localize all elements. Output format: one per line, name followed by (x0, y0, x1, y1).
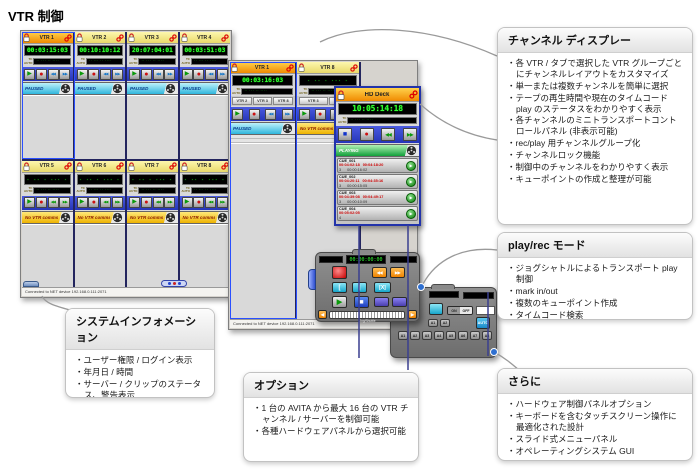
tc-row: TCAUTO (336, 115, 419, 125)
tc-row: TCAUTO (22, 56, 73, 66)
timecode-display: 00:03:15:03 (24, 45, 71, 56)
stop-button[interactable]: ■ (338, 128, 352, 141)
callout-bullet: タイムコード検索 (506, 310, 684, 321)
play-button[interactable]: ▶ (232, 109, 243, 120)
link-icon[interactable] (116, 34, 124, 42)
channel-body[interactable] (22, 95, 73, 159)
tc-mini-display (191, 187, 228, 194)
audio-channel-button[interactable]: A4 (434, 331, 444, 340)
vtr-channel[interactable]: VTR 7 TCAUTO ▶ ● ◀◀ ▶▶ (127, 161, 180, 288)
callout-bullet: ユーザー権限 / ログイン表示 (74, 355, 206, 366)
callout-bullet: キューポイントの作成と整理が可能 (506, 174, 684, 185)
mini-transport: ▶ ● ◀◀ ▶▶ (22, 67, 73, 81)
rewind-button[interactable]: ◀◀ (372, 267, 387, 278)
panel-notch[interactable] (431, 284, 455, 289)
channel-row-1: VTR 1 00:03:15:03 TCAUTO ▶ ● ◀◀ ▶▶ (22, 32, 230, 161)
channel-body[interactable] (127, 95, 178, 159)
vtr-channel[interactable]: VTR 8 TCAUTO ▶ ● ◀◀ ▶▶ (180, 161, 231, 288)
record-button[interactable] (332, 266, 347, 279)
channel-body[interactable] (180, 224, 231, 288)
callout-bullet: 複数のキューポイント作成 (506, 298, 684, 309)
callout-items: ジョグシャトルによるトランスポート play 制御mark in/out複数のキ… (498, 258, 692, 320)
channel-title: VTR 4 (188, 35, 222, 41)
mini-transport: ▶ ● ◀◀ ▶▶ (127, 196, 178, 210)
vtr-tab[interactable]: VTR 2 (232, 97, 252, 105)
tc-mini-display (241, 88, 293, 95)
aux-timecode-display (390, 256, 417, 263)
callout-bullet: 制御中のチャンネルをわかりやすく表示 (506, 162, 684, 173)
tc-auto-label: TCAUTO (182, 187, 190, 194)
play-button[interactable]: ▶ (77, 197, 88, 208)
mini-transport: ▶ ● ◀◀ ▶▶ (127, 67, 178, 81)
callout-bullet: 各種ハードウェアパネルから選択可能 (252, 426, 410, 437)
link-icon[interactable] (116, 162, 124, 170)
tc-row: TCAUTO (127, 56, 178, 66)
callout-channel-display: チャンネル ディスプレー 各 VTR / タブで選択した VTR グループごとに… (497, 27, 693, 225)
cue-item[interactable]: CUE_001 00:04:02:1800:04:18:20 300:00:16… (337, 158, 418, 173)
callout-items: ユーザー権限 / ログイン表示年月日 / 時間サーバー / クリップのステータス… (66, 350, 214, 398)
channel-title: VTR 7 (135, 163, 169, 169)
fast-forward-button[interactable]: ▶▶ (164, 197, 175, 208)
channel-header[interactable]: VTR 7 (127, 161, 178, 173)
mini-transport: ▶ ● ◀◀ ▶▶ (75, 196, 126, 210)
link-icon[interactable] (169, 34, 177, 42)
record-button[interactable]: ● (141, 197, 152, 208)
cue-duration: 00:00:15:05 (347, 184, 367, 188)
lock-icon[interactable] (181, 162, 188, 171)
tc-auto-label: TCAUTO (299, 88, 307, 95)
channel-title: HD Deck (345, 92, 409, 98)
mode-button[interactable] (392, 297, 407, 307)
record-button[interactable]: ● (88, 197, 99, 208)
tc-mini-display (33, 187, 70, 194)
jog-left-button[interactable]: ◀ (318, 310, 327, 319)
mini-transport: ▶ ● ◀◀ ▶▶ (230, 107, 295, 121)
tc-row: TCAUTO (22, 185, 73, 195)
channel-row-2: VTR 5 TCAUTO ▶ ● ◀◀ ▶▶ (22, 161, 230, 288)
channel-pager[interactable] (161, 280, 187, 287)
timecode-display (299, 75, 357, 86)
vtr-channel[interactable]: VTR 3 20:07:04:01 TCAUTO ▶ ● ◀◀ ▶▶ (127, 32, 180, 159)
record-button[interactable]: ● (193, 197, 204, 208)
film-reel-icon (110, 83, 125, 94)
rewind-button[interactable]: ◀◀ (153, 197, 164, 208)
cue-duration: 00:00:10:09 (347, 200, 367, 204)
fast-forward-button[interactable]: ▶▶ (59, 197, 70, 208)
play-button[interactable]: ▶ (77, 69, 88, 80)
record-button[interactable]: ● (249, 109, 260, 120)
channel-header[interactable]: VTR 5 (22, 161, 73, 173)
callout-items: 各 VTR / タブで選択した VTR グループごとにチャンネルレイアウトをカス… (498, 53, 692, 190)
callout-bullet: 各 VTR / タブで選択した VTR グループごとにチャンネルレイアウトをカス… (506, 58, 684, 80)
fast-forward-button[interactable]: ▶▶ (217, 197, 228, 208)
link-icon[interactable] (221, 34, 229, 42)
cue-play-button[interactable]: ▶ (406, 161, 416, 171)
mini-transport: ▶ ● ◀◀ ▶▶ (180, 67, 231, 81)
vtr-channel[interactable]: VTR 2 00:10:10:12 TCAUTO ▶ ● ◀◀ ▶▶ (75, 32, 128, 159)
channel-title: VTR 1 (238, 65, 286, 71)
tc-auto-label: TCAUTO (129, 187, 137, 194)
tc-auto-label: TCAUTO (24, 58, 32, 65)
tc-mini-display (33, 58, 70, 65)
channel-status-bar: PAUSED (75, 82, 126, 95)
channel-header[interactable]: VTR 3 (127, 32, 178, 44)
mark-button[interactable] (429, 303, 443, 315)
tc-auto-label: TCAUTO (338, 117, 346, 124)
channel-title: VTR 8 (188, 163, 222, 169)
toggle-off[interactable]: OFF (460, 307, 472, 314)
vtr-channel[interactable]: VTR 5 TCAUTO ▶ ● ◀◀ ▶▶ (22, 161, 75, 288)
cue-out: 00:04:49:17 (363, 195, 384, 199)
channel-body[interactable] (75, 224, 126, 288)
link-icon[interactable] (286, 64, 294, 72)
callout-title: オプション (244, 373, 418, 398)
rewind-button[interactable]: ◀◀ (153, 69, 164, 80)
fast-forward-button[interactable]: ▶▶ (112, 197, 123, 208)
film-reel-icon (110, 212, 125, 223)
cue-number: 4 (339, 216, 341, 220)
audio-channel-button[interactable]: A2 (410, 331, 420, 340)
record-button[interactable]: ● (36, 69, 47, 80)
timecode-display (129, 174, 176, 185)
vtr-channel[interactable]: VTR 4 00:03:51:03 TCAUTO ▶ ● ◀◀ ▶▶ (180, 32, 231, 159)
mini-transport: ■ ● ◀◀ ▶▶ (336, 126, 419, 143)
rewind-button[interactable]: ◀◀ (381, 128, 395, 141)
cue-play-button[interactable]: ▶ (406, 177, 416, 187)
channel-header[interactable]: VTR 1 (230, 62, 295, 74)
record-button[interactable]: ● (360, 128, 374, 141)
timecode-display (24, 174, 71, 185)
timecode-display (77, 174, 124, 185)
channel-header[interactable]: VTR 6 (75, 161, 126, 173)
link-icon[interactable] (64, 34, 72, 42)
lock-icon[interactable] (128, 33, 135, 42)
play-button[interactable]: ▶ (129, 197, 140, 208)
channel-body[interactable] (127, 224, 178, 288)
tc-row: TCAUTO (75, 185, 126, 195)
tc-row: TCAUTO (180, 185, 231, 195)
mini-transport: ▶ ● ◀◀ ▶▶ (22, 196, 73, 210)
record-button[interactable]: ● (193, 69, 204, 80)
callout-bullet: 単一または複数チャンネルを簡単に選択 (506, 81, 684, 92)
tc-row: TCAUTO (180, 56, 231, 66)
rewind-button[interactable]: ◀◀ (100, 197, 111, 208)
channel-body[interactable] (180, 95, 231, 159)
channel-status-bar: PLAYING (336, 144, 419, 157)
cue-in: 00:04:20:11 (339, 179, 359, 183)
mark-clear-button[interactable]: [X] (374, 282, 391, 293)
tc-auto-label: TCAUTO (77, 58, 85, 65)
callout-title: さらに (498, 369, 692, 394)
record-button[interactable]: ● (36, 197, 47, 208)
record-button[interactable]: ● (315, 109, 326, 120)
panel-notch[interactable] (352, 249, 376, 254)
channel-status-bar: No VTR comms (22, 211, 73, 224)
rewind-button[interactable]: ◀◀ (48, 69, 59, 80)
audio-channel-button[interactable]: A6 (458, 331, 468, 340)
vtr-tab[interactable]: VTR 3 (299, 97, 328, 105)
vtr-channel[interactable]: VTR 1 00:03:15:03 TCAUTO ▶ ● ◀◀ ▶▶ (22, 32, 75, 159)
tc-mini-display (138, 187, 175, 194)
tc-mini-display (191, 58, 228, 65)
channel-status: PLAYING (336, 148, 404, 153)
cue-info: CUE_001 00:04:02:1800:04:18:20 300:00:16… (339, 159, 406, 172)
timecode-entry-field[interactable] (476, 306, 495, 315)
channel-status: No VTR comms (22, 215, 58, 220)
pair-button[interactable]: A2 (440, 319, 450, 327)
channel-header[interactable]: VTR 1 (22, 32, 73, 44)
page-title: VTR 制御 (8, 6, 64, 25)
tc-row: TCAUTO (75, 56, 126, 66)
mark-out-button[interactable]: ] (352, 282, 367, 293)
audio-channel-button[interactable]: A8 (482, 331, 492, 340)
channel-status-bar: No VTR comms (180, 211, 231, 224)
lock-icon[interactable] (23, 162, 30, 171)
rewind-button[interactable]: ◀◀ (48, 197, 59, 208)
cue-number: 3 (339, 168, 341, 172)
lock-icon[interactable] (231, 63, 238, 72)
link-icon[interactable] (169, 162, 177, 170)
channel-status: No VTR comms (180, 215, 216, 220)
fast-forward-button[interactable]: ▶▶ (403, 128, 417, 141)
callout-bullet: サーバー / クリップのステータス、警告表示 (74, 379, 206, 398)
film-reel-icon (163, 212, 178, 223)
lock-icon[interactable] (76, 162, 83, 171)
mark-in-button[interactable]: [ (332, 282, 347, 293)
aux-timecode-display (319, 256, 343, 263)
channel-header[interactable]: VTR 8 (180, 161, 231, 173)
channel-status-bar: PAUSED (127, 82, 178, 95)
fast-forward-button[interactable]: ▶▶ (164, 69, 175, 80)
aux-timecode-display (463, 292, 494, 299)
play-button[interactable]: ▶ (24, 69, 35, 80)
timecode-display: 20:07:04:01 (129, 45, 176, 56)
channel-header[interactable]: VTR 2 (75, 32, 126, 44)
timecode-display: 00:03:51:03 (182, 45, 229, 56)
timecode-display: 10:05:14:18 (338, 103, 417, 115)
channel-status: PAUSED (75, 86, 111, 91)
tc-auto-label: TCAUTO (182, 58, 190, 65)
cue-item[interactable]: CUE_004 00:05:02:05 4 ▶ (337, 206, 418, 221)
audio-channel-button[interactable]: A7 (470, 331, 480, 340)
channel-status: PAUSED (230, 126, 280, 131)
cue-in: 00:05:02:05 (339, 211, 360, 215)
mini-transport: ▶ ● ◀◀ ▶▶ (75, 67, 126, 81)
film-reel-icon (58, 83, 73, 94)
film-reel-icon (280, 123, 295, 134)
audio-channel-button[interactable]: A1 (398, 331, 408, 340)
play-button[interactable]: ▶ (299, 109, 310, 120)
channel-status-bar: PAUSED (230, 122, 295, 135)
rewind-button[interactable]: ◀◀ (265, 109, 276, 120)
hd-deck-panel[interactable]: HD Deck 10:05:14:18 TCAUTO ■ ● ◀◀ ▶▶ PLA… (334, 86, 421, 226)
channel-body[interactable] (22, 224, 73, 288)
connection-status-bar: Connected to NET device 192.168.0.111:20… (22, 287, 230, 296)
audio-channel-button[interactable]: A5 (446, 331, 456, 340)
cue-out: 00:04:18:20 (363, 163, 384, 167)
callout-bullet: ジョグシャトルによるトランスポート play 制御 (506, 263, 684, 285)
rewind-button[interactable]: ◀◀ (100, 69, 111, 80)
channel-header[interactable]: VTR 8 (297, 62, 359, 74)
cue-play-button[interactable]: ▶ (406, 193, 416, 203)
vtr-tab[interactable]: VTR 3 (253, 97, 273, 105)
callout-items: 1 台の AVITA から最大 16 台の VTR チャンネル / サーバーを制… (244, 398, 418, 442)
cue-out: 00:04:35:16 (362, 179, 383, 183)
callout-bullet: スライド式メニューパネル (506, 434, 684, 445)
link-icon[interactable] (350, 64, 358, 72)
channel-status: PAUSED (22, 86, 58, 91)
link-icon[interactable] (64, 162, 72, 170)
channel-status: PAUSED (180, 86, 216, 91)
fast-forward-button[interactable]: ▶▶ (112, 69, 123, 80)
cue-duration: 00:00:16:02 (347, 168, 367, 172)
play-button[interactable]: ▶ (24, 197, 35, 208)
channel-status: PAUSED (127, 86, 163, 91)
jog-right-button[interactable]: ▶ (408, 310, 417, 319)
audio-channel-buttons: A1A2A3A4A5A6A7A8 (398, 331, 492, 340)
callout-bullet: チャンネルロック機能 (506, 150, 684, 161)
tc-auto-label: TCAUTO (129, 58, 137, 65)
channel-header[interactable]: HD Deck (336, 88, 419, 102)
channel-status-bar: PAUSED (22, 82, 73, 95)
record-button[interactable]: ● (88, 69, 99, 80)
tc-row: TCAUTO (230, 86, 295, 96)
callout-bullet: オペレーティングシステム GUI (506, 446, 684, 457)
film-reel-icon (163, 83, 178, 94)
aux-timecode-display (429, 291, 459, 298)
callout-bullet: 各チャンネルのミニトランスポートコントロールパネル (非表示可能) (506, 115, 684, 137)
lock-icon[interactable] (76, 33, 83, 42)
film-reel-icon (58, 212, 73, 223)
channel-title: VTR 8 (305, 65, 350, 71)
callout-title: チャンネル ディスプレー (498, 28, 692, 53)
cue-in: 00:04:02:18 (339, 163, 360, 167)
transport-control-panel: 00:00:00:00 ◀◀ ▶▶ [ ] [X] ▶ ■ ◀ ▶ Jog/Sh… (315, 252, 420, 322)
vtr-channel[interactable]: VTR 6 TCAUTO ▶ ● ◀◀ ▶▶ (75, 161, 128, 288)
record-button[interactable]: ● (141, 69, 152, 80)
cue-info: CUE_004 00:05:02:05 4 (339, 207, 406, 220)
rewind-button[interactable]: ◀◀ (205, 197, 216, 208)
callout-title: play/rec モード (498, 233, 692, 258)
channel-body[interactable] (230, 143, 295, 319)
audio-channel-button[interactable]: A3 (422, 331, 432, 340)
fast-forward-button[interactable]: ▶▶ (390, 267, 405, 278)
tc-auto-label: TCAUTO (24, 187, 32, 194)
fast-forward-button[interactable]: ▶▶ (217, 69, 228, 80)
tc-row: TCAUTO (127, 185, 178, 195)
page: VTR 制御 VTR 1 00:03:15:03 TCAUTO (0, 0, 700, 473)
callout-bullet: テープの再生時間や現在のタイムコード play のステータスをわかりやすく表示 (506, 93, 684, 115)
channel-status-bar: No VTR comms (127, 211, 178, 224)
channel-body[interactable] (75, 95, 126, 159)
cue-number: 3 (339, 200, 341, 204)
lock-icon[interactable] (181, 33, 188, 42)
lock-icon[interactable] (337, 90, 345, 100)
rewind-button[interactable]: ◀◀ (205, 69, 216, 80)
channel-title: VTR 2 (83, 35, 117, 41)
callout-bullet: 1 台の AVITA から最大 16 台の VTR チャンネル / サーバーを制… (252, 403, 410, 425)
callout-options: オプション 1 台の AVITA から最大 16 台の VTR チャンネル / … (243, 372, 419, 462)
callout-bullet: ハードウェア制御パネルオプション (506, 399, 684, 410)
cue-item[interactable]: CUE_003 00:04:39:0800:04:49:17 300:00:10… (337, 190, 418, 205)
lock-icon[interactable] (128, 162, 135, 171)
channel-title: VTR 5 (30, 163, 64, 169)
jog-label: Jog/Shuttle (316, 319, 419, 323)
mini-transport: ▶ ● ◀◀ ▶▶ (180, 196, 231, 210)
play-button[interactable]: ▶ (129, 69, 140, 80)
channel-title: VTR 6 (83, 163, 117, 169)
jog-shuttle-slider[interactable] (329, 311, 405, 319)
vtr-grid-window: VTR 1 00:03:15:03 TCAUTO ▶ ● ◀◀ ▶▶ (20, 30, 232, 298)
callout-items: ハードウェア制御パネルオプションキーボードを含むタッチスクリーン操作に最適化され… (498, 394, 692, 461)
cue-play-button[interactable]: ▶ (406, 209, 416, 219)
channel-status-bar: No VTR comms (75, 211, 126, 224)
cue-in: 00:04:39:08 (339, 195, 360, 199)
callout-bullet: mark in/out (506, 286, 684, 297)
channel-title: VTR 1 (30, 35, 64, 41)
tc-mini-display (138, 58, 175, 65)
cue-list: CUE_001 00:04:02:1800:04:18:20 300:00:16… (336, 157, 419, 224)
tc-auto-label: TCAUTO (77, 187, 85, 194)
main-timecode-display: 00:00:00:00 (346, 255, 386, 264)
lock-icon[interactable] (23, 33, 30, 42)
callout-bullet: rec/play 用チャンネルグループ化 (506, 138, 684, 149)
vtr-tab[interactable]: VTR 8 (273, 97, 293, 105)
callout-bullet: 年月日 / 時間 (74, 367, 206, 378)
slide-menu-handle[interactable] (308, 269, 316, 290)
auto-button[interactable]: AUTO (476, 317, 490, 329)
cue-item[interactable]: CUE_002 00:04:20:1100:04:35:16 300:00:15… (337, 174, 418, 189)
callout-system-information: システムインフォメーション ユーザー権限 / ログイン表示年月日 / 時間サーバ… (65, 308, 215, 398)
channel-status: No VTR comms (127, 215, 163, 220)
callout-play-rec-mode: play/rec モード ジョグシャトルによるトランスポート play 制御ma… (497, 232, 693, 320)
film-reel-icon (404, 145, 419, 156)
timecode-display (182, 174, 229, 185)
in-out-toggle[interactable]: ON OFF (447, 306, 473, 315)
mode-button[interactable] (374, 297, 389, 307)
cue-info: CUE_002 00:04:20:1100:04:35:16 300:00:15… (339, 175, 406, 188)
timecode-display: 00:03:16:03 (232, 75, 293, 86)
tc-mini-display (86, 187, 123, 194)
fast-forward-button[interactable]: ▶▶ (59, 69, 70, 80)
channel-header[interactable]: VTR 4 (180, 32, 231, 44)
fast-forward-button[interactable]: ▶▶ (282, 109, 293, 120)
play-button[interactable]: ▶ (182, 197, 193, 208)
vtr-tab-bar: VTR 2VTR 3VTR 8 (230, 96, 295, 106)
cue-info: CUE_003 00:04:39:0800:04:49:17 300:00:10… (339, 191, 406, 204)
play-button[interactable]: ▶ (182, 69, 193, 80)
channel-title: VTR 3 (135, 35, 169, 41)
tc-mini-display (347, 117, 417, 124)
toggle-on[interactable]: ON (448, 307, 460, 314)
timecode-display: 00:10:10:12 (77, 45, 124, 56)
link-icon[interactable] (409, 90, 418, 99)
callout-title: システムインフォメーション (66, 309, 214, 350)
channel-status-bar: PAUSED (180, 82, 231, 95)
channel-status: No VTR comms (75, 215, 111, 220)
lock-icon[interactable] (298, 63, 305, 72)
vtr-channel[interactable]: VTR 1 00:03:16:03 TCAUTO VTR 2VTR 3VTR 8… (230, 62, 297, 319)
stop-button[interactable]: ■ (354, 296, 369, 308)
tc-auto-label: TCAUTO (232, 88, 240, 95)
cue-number: 3 (339, 184, 341, 188)
play-button[interactable]: ▶ (332, 296, 347, 308)
callout-bullet: キーボードを含むタッチスクリーン操作に最適化された設計 (506, 411, 684, 433)
pair-button[interactable]: A1 (428, 319, 438, 327)
channel-grid: VTR 1 00:03:15:03 TCAUTO ▶ ● ◀◀ ▶▶ (22, 32, 230, 287)
tc-mini-display (86, 58, 123, 65)
callout-more: さらに ハードウェア制御パネルオプションキーボードを含むタッチスクリーン操作に最… (497, 368, 693, 461)
